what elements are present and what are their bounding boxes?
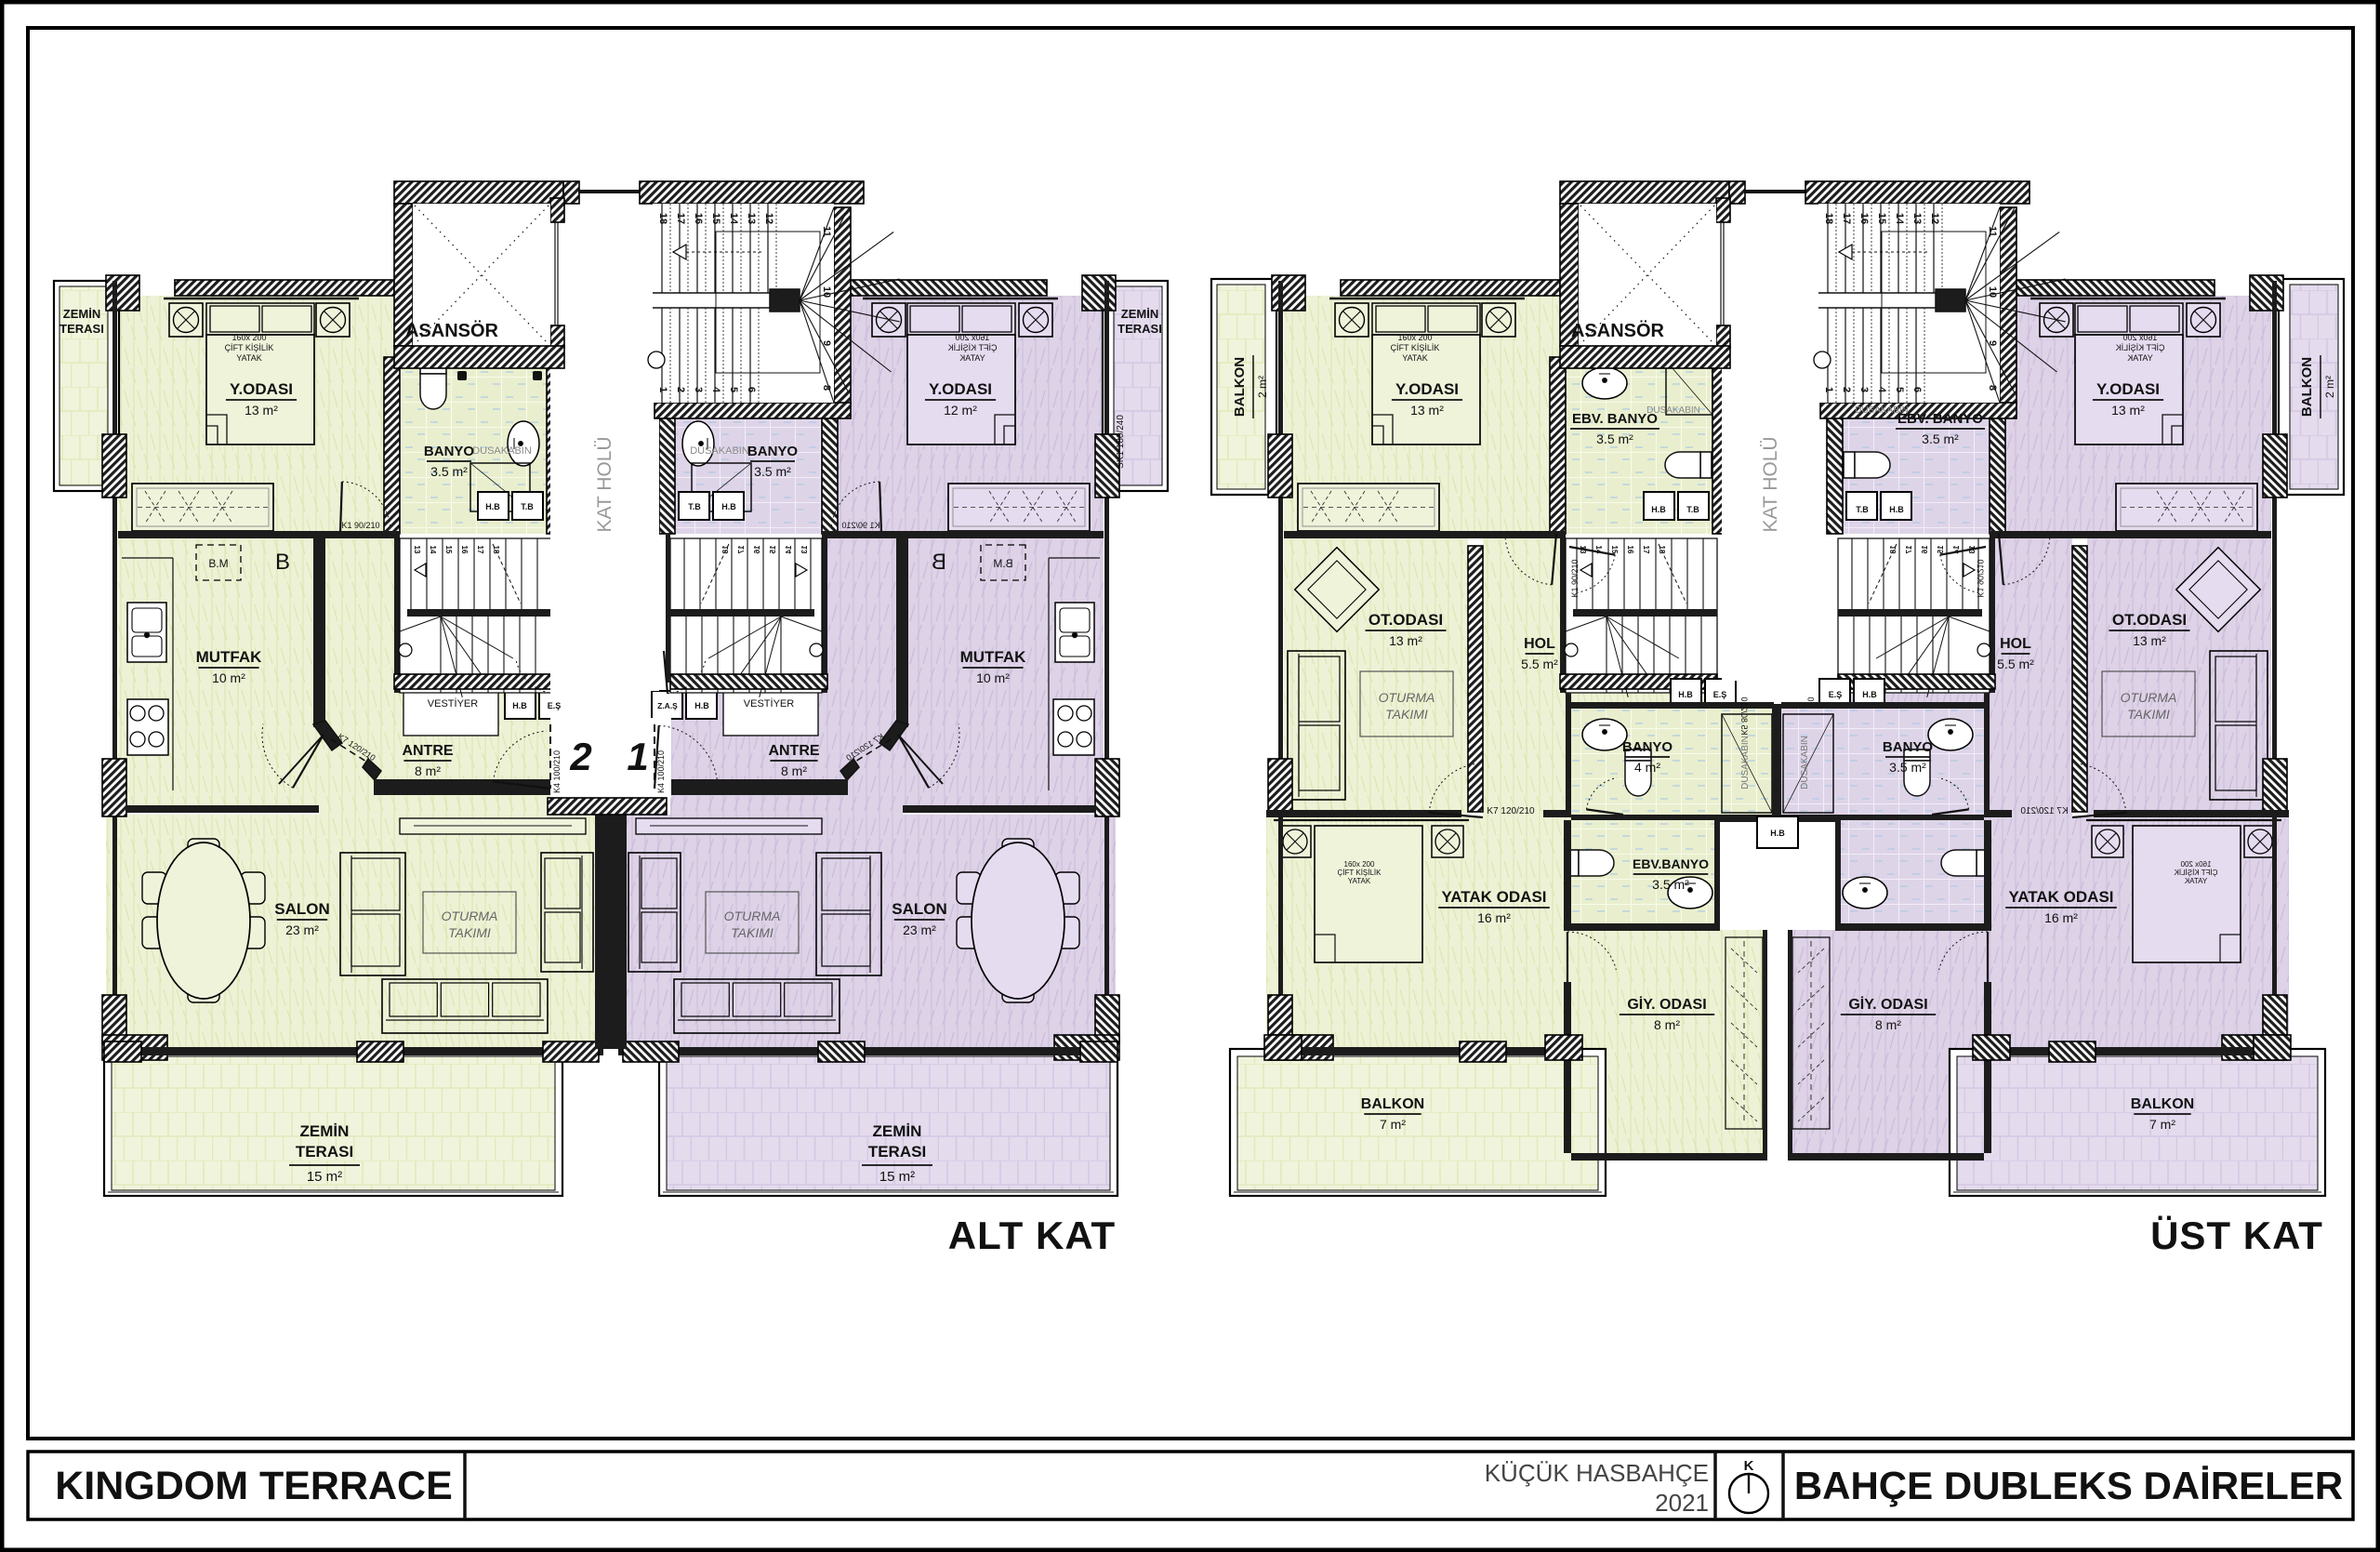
svg-text:DUSAKABIN: DUSAKABIN — [690, 445, 749, 457]
svg-text:BAHÇE DUBLEKS DAİRELER: BAHÇE DUBLEKS DAİRELER — [1794, 1464, 2343, 1507]
svg-text:TAKIMI: TAKIMI — [448, 925, 491, 940]
svg-text:1: 1 — [627, 735, 648, 778]
svg-text:T.B: T.B — [521, 502, 534, 511]
svg-text:6: 6 — [1911, 387, 1923, 392]
svg-text:8 m²: 8 m² — [781, 763, 807, 778]
svg-text:5: 5 — [728, 387, 739, 392]
svg-text:7 m²: 7 m² — [1380, 1117, 1406, 1132]
svg-text:2: 2 — [1841, 387, 1852, 392]
svg-text:15: 15 — [444, 546, 453, 554]
svg-text:BALKON: BALKON — [2299, 357, 2315, 417]
svg-text:DUSAKABIN: DUSAKABIN — [1740, 736, 1751, 789]
svg-text:9: 9 — [1987, 340, 1998, 346]
svg-text:ASANSÖR: ASANSÖR — [405, 320, 499, 341]
svg-text:17: 17 — [1905, 546, 1913, 554]
svg-text:BANYO: BANYO — [747, 444, 799, 459]
svg-text:YATAK: YATAK — [2184, 877, 2207, 885]
svg-text:ZEMİN: ZEMİN — [300, 1122, 350, 1140]
svg-text:GİY. ODASI: GİY. ODASI — [1848, 996, 1927, 1013]
svg-text:2: 2 — [569, 735, 591, 778]
svg-text:OT.ODASI: OT.ODASI — [2112, 611, 2187, 629]
svg-text:7 m²: 7 m² — [2149, 1117, 2175, 1132]
svg-text:13 m²: 13 m² — [2133, 633, 2166, 648]
svg-text:12: 12 — [763, 213, 774, 224]
svg-text:OTURMA: OTURMA — [1379, 690, 1435, 705]
svg-text:BALKON: BALKON — [1361, 1096, 1424, 1112]
svg-text:23 m²: 23 m² — [285, 922, 319, 937]
svg-text:TAKIMI: TAKIMI — [2127, 707, 2170, 722]
svg-text:KAT HOLÜ: KAT HOLÜ — [594, 436, 615, 532]
svg-text:6: 6 — [746, 387, 757, 392]
svg-text:OTURMA: OTURMA — [442, 909, 498, 923]
svg-text:K1 90/210: K1 90/210 — [1570, 559, 1580, 597]
svg-text:8: 8 — [821, 385, 832, 391]
svg-text:E.Ş: E.Ş — [548, 701, 562, 710]
svg-text:OT.ODASI: OT.ODASI — [1368, 611, 1443, 629]
svg-text:ÇİFT KİŞİLİK: ÇİFT KİŞİLİK — [2116, 343, 2165, 352]
svg-text:ZEMİN: ZEMİN — [63, 307, 100, 321]
svg-text:K4 100/210: K4 100/210 — [552, 750, 562, 793]
svg-text:160x 200: 160x 200 — [1397, 333, 1432, 342]
svg-text:B: B — [932, 550, 946, 575]
svg-text:TAKIMI: TAKIMI — [731, 925, 773, 940]
svg-text:ÇİFT KİŞİLİK: ÇİFT KİŞİLİK — [2174, 869, 2218, 877]
svg-text:160x 200: 160x 200 — [1344, 860, 1375, 869]
svg-text:BALKON: BALKON — [2131, 1096, 2194, 1112]
svg-text:GİY. ODASI: GİY. ODASI — [1627, 996, 1706, 1013]
svg-text:2 m²: 2 m² — [1256, 376, 1269, 398]
svg-text:3.5 m²: 3.5 m² — [1652, 877, 1689, 892]
svg-text:H.B: H.B — [1651, 505, 1666, 514]
svg-text:17: 17 — [476, 546, 484, 554]
svg-text:ALT KAT: ALT KAT — [948, 1214, 1116, 1257]
svg-text:TERASI: TERASI — [1117, 322, 1162, 336]
svg-text:18: 18 — [1823, 213, 1834, 224]
svg-text:T.B: T.B — [1686, 505, 1699, 514]
svg-text:K1 90/210: K1 90/210 — [341, 521, 379, 530]
svg-text:B.M: B.M — [993, 557, 1012, 570]
svg-text:11: 11 — [821, 226, 832, 237]
svg-text:13: 13 — [1911, 213, 1923, 224]
svg-text:K: K — [1744, 1458, 1754, 1474]
svg-text:18: 18 — [1889, 546, 1897, 554]
svg-text:2: 2 — [675, 387, 686, 392]
svg-text:16: 16 — [753, 546, 761, 554]
svg-text:4 m²: 4 m² — [1634, 760, 1660, 775]
svg-text:8 m²: 8 m² — [415, 763, 441, 778]
svg-text:HOL: HOL — [2000, 636, 2031, 652]
svg-text:13: 13 — [746, 213, 757, 224]
svg-text:3.5 m²: 3.5 m² — [1922, 431, 1959, 446]
svg-text:17: 17 — [737, 546, 746, 554]
svg-text:8: 8 — [1987, 385, 1998, 391]
svg-text:10: 10 — [1987, 286, 1998, 298]
svg-text:12: 12 — [1929, 213, 1940, 224]
svg-text:160x 200: 160x 200 — [231, 333, 266, 342]
svg-text:B.M: B.M — [208, 557, 228, 570]
svg-text:DUSAKABIN: DUSAKABIN — [472, 445, 532, 457]
svg-text:KINGDOM TERRACE: KINGDOM TERRACE — [55, 1464, 453, 1508]
svg-text:TAKIMI: TAKIMI — [1385, 707, 1428, 722]
svg-text:16: 16 — [1626, 546, 1634, 554]
svg-text:8 m²: 8 m² — [1654, 1017, 1680, 1032]
svg-text:SALON: SALON — [274, 900, 330, 918]
svg-text:10 m²: 10 m² — [212, 670, 245, 685]
svg-text:MUTFAK: MUTFAK — [196, 648, 263, 666]
svg-text:13 m²: 13 m² — [1410, 403, 1444, 418]
svg-text:13 m²: 13 m² — [1389, 633, 1422, 648]
svg-text:B: B — [275, 550, 290, 575]
svg-text:ZEMİN: ZEMİN — [1121, 307, 1158, 321]
svg-text:EBV. BANYO: EBV. BANYO — [1897, 411, 1983, 427]
svg-text:YATAK: YATAK — [1348, 877, 1371, 885]
svg-text:13: 13 — [800, 546, 809, 554]
svg-text:3.5 m²: 3.5 m² — [754, 464, 791, 479]
svg-text:Y.ODASI: Y.ODASI — [2096, 380, 2160, 398]
svg-text:3.5 m²: 3.5 m² — [430, 464, 468, 479]
svg-text:10 m²: 10 m² — [976, 670, 1010, 685]
svg-text:9: 9 — [821, 340, 832, 346]
svg-text:BANYO: BANYO — [424, 444, 475, 459]
svg-text:5: 5 — [1894, 387, 1905, 392]
svg-text:2 m²: 2 m² — [2323, 376, 2336, 398]
svg-text:13: 13 — [413, 546, 421, 554]
svg-text:13 m²: 13 m² — [2111, 403, 2145, 418]
svg-text:13 m²: 13 m² — [245, 403, 278, 418]
svg-text:YATAK: YATAK — [1402, 353, 1428, 363]
svg-text:BANYO: BANYO — [1622, 739, 1673, 755]
svg-text:K7 120/210: K7 120/210 — [1487, 806, 1535, 816]
svg-text:ÇİFT KİŞİLİK: ÇİFT KİŞİLİK — [1391, 343, 1440, 352]
svg-text:EBV. BANYO: EBV. BANYO — [1572, 411, 1658, 427]
svg-text:2021: 2021 — [1655, 1489, 1709, 1517]
svg-text:4: 4 — [1876, 387, 1887, 393]
svg-text:H.B: H.B — [485, 502, 500, 511]
svg-text:SALON: SALON — [892, 900, 947, 918]
svg-text:YATAK: YATAK — [2127, 353, 2153, 363]
svg-text:K1 90/210: K1 90/210 — [841, 521, 879, 530]
svg-text:18: 18 — [657, 213, 668, 224]
svg-text:TERASI: TERASI — [59, 322, 104, 336]
svg-text:18: 18 — [492, 546, 500, 554]
svg-text:16 m²: 16 m² — [2044, 910, 2078, 925]
svg-text:T.B: T.B — [1856, 505, 1869, 514]
svg-text:11: 11 — [1987, 226, 1998, 237]
svg-text:K7 120/210: K7 120/210 — [2020, 806, 2069, 816]
svg-text:H.B: H.B — [694, 701, 709, 710]
svg-text:14: 14 — [1894, 213, 1905, 225]
svg-text:K1 90/210: K1 90/210 — [1976, 559, 1985, 597]
svg-text:EBV.BANYO: EBV.BANYO — [1633, 856, 1709, 871]
svg-text:3.5 m²: 3.5 m² — [1889, 760, 1926, 775]
svg-text:17: 17 — [1642, 546, 1650, 554]
svg-text:Y.ODASI: Y.ODASI — [929, 380, 992, 398]
svg-text:ÇİFT KİŞİLİK: ÇİFT KİŞİLİK — [1338, 869, 1382, 877]
svg-text:TERASI: TERASI — [868, 1143, 926, 1161]
svg-text:1: 1 — [1823, 387, 1834, 392]
svg-text:15 m²: 15 m² — [879, 1169, 915, 1185]
svg-text:DUSAKABIN: DUSAKABIN — [1855, 405, 1909, 416]
svg-text:ASANSÖR: ASANSÖR — [1571, 320, 1665, 341]
svg-text:H.B: H.B — [512, 701, 527, 710]
svg-text:23 m²: 23 m² — [903, 922, 936, 937]
svg-text:H.B: H.B — [1889, 505, 1904, 514]
svg-text:18: 18 — [1658, 546, 1666, 554]
svg-text:E.Ş: E.Ş — [1829, 690, 1843, 699]
svg-text:16: 16 — [1921, 546, 1929, 554]
svg-text:3: 3 — [1858, 387, 1870, 392]
svg-text:5.5 m²: 5.5 m² — [1997, 657, 2034, 671]
svg-text:T.B: T.B — [688, 502, 701, 511]
svg-text:VESTİYER: VESTİYER — [744, 697, 794, 710]
svg-text:E.Ş: E.Ş — [1713, 690, 1727, 699]
svg-text:15: 15 — [1610, 546, 1619, 554]
svg-text:H.B: H.B — [1862, 690, 1877, 699]
svg-text:VESTİYER: VESTİYER — [428, 697, 478, 710]
svg-text:12 m²: 12 m² — [944, 403, 977, 418]
svg-text:160x 200: 160x 200 — [955, 333, 989, 342]
svg-text:ZEMİN: ZEMİN — [873, 1122, 922, 1140]
svg-text:ANTRE: ANTRE — [768, 743, 819, 759]
svg-text:ÜST KAT: ÜST KAT — [2150, 1214, 2323, 1257]
svg-text:K5 80/210: K5 80/210 — [1739, 696, 1749, 735]
svg-text:14: 14 — [728, 213, 739, 225]
svg-text:Y.ODASI: Y.ODASI — [230, 380, 293, 398]
svg-text:5.5 m²: 5.5 m² — [1521, 657, 1558, 671]
svg-text:ÇİFT KİŞİLİK: ÇİFT KİŞİLİK — [225, 343, 274, 352]
svg-text:17: 17 — [1841, 213, 1852, 224]
svg-text:YATAK: YATAK — [959, 353, 985, 363]
svg-text:OTURMA: OTURMA — [724, 909, 781, 923]
svg-text:14: 14 — [429, 546, 437, 554]
svg-text:H.B: H.B — [1770, 829, 1785, 838]
svg-text:Z.A.Ş: Z.A.Ş — [657, 701, 678, 710]
svg-text:16: 16 — [1858, 213, 1870, 224]
svg-text:4: 4 — [710, 387, 721, 393]
svg-text:10: 10 — [821, 286, 832, 298]
svg-text:YATAK: YATAK — [236, 353, 262, 363]
svg-text:15: 15 — [1876, 213, 1887, 224]
svg-text:18: 18 — [721, 546, 730, 554]
svg-text:DUSAKABIN: DUSAKABIN — [1646, 405, 1700, 416]
svg-text:OTURMA: OTURMA — [2121, 690, 2177, 705]
svg-text:BALKON: BALKON — [1232, 357, 1248, 417]
svg-text:15 m²: 15 m² — [307, 1169, 342, 1185]
svg-text:H.B: H.B — [1678, 690, 1693, 699]
svg-text:TERASI: TERASI — [296, 1143, 353, 1161]
svg-text:160x 200: 160x 200 — [2180, 860, 2211, 869]
svg-text:BANYO: BANYO — [1883, 739, 1934, 755]
svg-text:17: 17 — [675, 213, 686, 224]
svg-text:MUTFAK: MUTFAK — [960, 648, 1027, 666]
svg-text:K4 100/210: K4 100/210 — [656, 750, 666, 793]
svg-text:HOL: HOL — [1524, 636, 1555, 652]
svg-text:160x 200: 160x 200 — [2122, 333, 2157, 342]
svg-text:Y.ODASI: Y.ODASI — [1395, 380, 1459, 398]
svg-text:15: 15 — [1937, 546, 1945, 554]
svg-text:H.B: H.B — [721, 502, 736, 511]
svg-text:14: 14 — [785, 546, 793, 554]
svg-text:16: 16 — [460, 546, 469, 554]
svg-text:ÇİFT KİŞİLİK: ÇİFT KİŞİLİK — [948, 343, 998, 352]
svg-text:16: 16 — [693, 213, 704, 224]
svg-text:1: 1 — [657, 387, 668, 392]
svg-text:YATAK ODASI: YATAK ODASI — [1441, 888, 1546, 906]
svg-text:SK1 180/240: SK1 180/240 — [1116, 415, 1126, 469]
svg-text:DUSAKABIN: DUSAKABIN — [1800, 736, 1810, 789]
svg-text:3.5 m²: 3.5 m² — [1596, 431, 1633, 446]
svg-text:YATAK ODASI: YATAK ODASI — [2008, 888, 2113, 906]
svg-text:3: 3 — [693, 387, 704, 392]
svg-text:KÜÇÜK HASBAHÇE: KÜÇÜK HASBAHÇE — [1485, 1459, 1709, 1487]
svg-text:KAT HOLÜ: KAT HOLÜ — [1760, 436, 1781, 532]
svg-text:8 m²: 8 m² — [1875, 1017, 1901, 1032]
svg-text:ANTRE: ANTRE — [402, 743, 453, 759]
svg-text:16 m²: 16 m² — [1477, 910, 1511, 925]
svg-text:15: 15 — [769, 546, 777, 554]
svg-text:15: 15 — [710, 213, 721, 224]
